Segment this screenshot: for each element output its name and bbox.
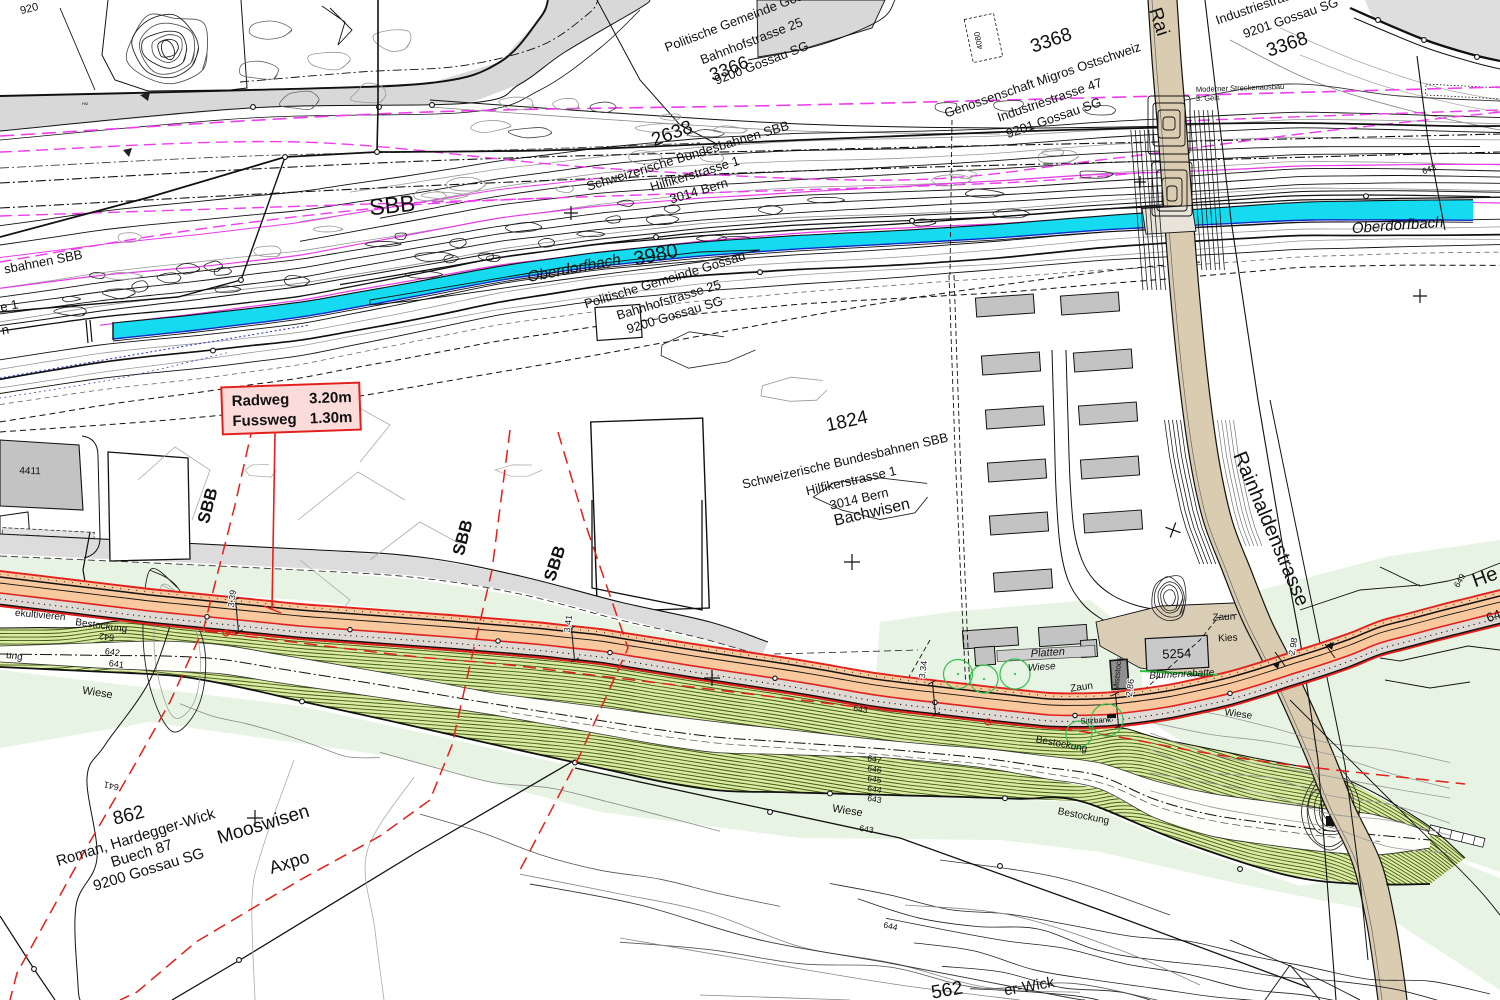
svg-text:Radweg: Radweg: [231, 391, 289, 410]
svg-text:SBB: SBB: [368, 190, 416, 221]
svg-text:641: 641: [108, 658, 124, 670]
svg-text:1.30m: 1.30m: [310, 409, 353, 427]
svg-text:Hst: Hst: [82, 101, 89, 106]
svg-text:3.20m: 3.20m: [309, 389, 352, 407]
svg-text:3. Geis: 3. Geis: [1196, 93, 1220, 103]
svg-text:ung: ung: [5, 650, 23, 663]
svg-text:Kies: Kies: [1218, 633, 1238, 645]
svg-text:4411: 4411: [19, 466, 41, 478]
svg-text:Platten: Platten: [1030, 646, 1065, 660]
svg-text:Fussweg: Fussweg: [232, 411, 297, 430]
svg-text:2.86: 2.86: [1124, 678, 1136, 697]
svg-text:5254: 5254: [1162, 645, 1192, 661]
svg-text:Sitzbank: Sitzbank: [1080, 715, 1112, 726]
svg-text:Zaun: Zaun: [1212, 611, 1235, 623]
svg-text:3.34: 3.34: [917, 660, 929, 679]
svg-text:3.39: 3.39: [226, 589, 238, 608]
svg-text:3.41: 3.41: [562, 614, 574, 633]
svg-text:642: 642: [98, 631, 114, 643]
svg-text:Wiese: Wiese: [1028, 661, 1057, 674]
svg-text:642: 642: [104, 646, 120, 658]
